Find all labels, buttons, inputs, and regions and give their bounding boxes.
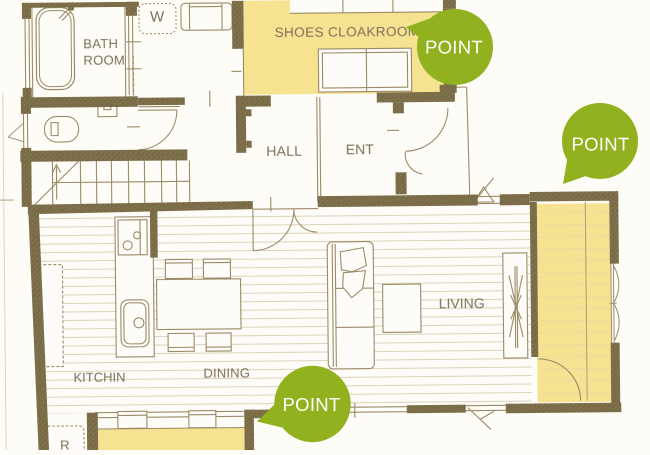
svg-text:POINT: POINT (571, 133, 629, 154)
svg-text:HALL: HALL (266, 143, 302, 159)
svg-text:POINT: POINT (425, 36, 483, 57)
svg-text:R: R (60, 437, 70, 450)
svg-text:LIVING: LIVING (439, 295, 485, 311)
svg-text:W: W (150, 9, 165, 26)
svg-text:ENT: ENT (346, 141, 375, 157)
svg-text:KITCHIN: KITCHIN (73, 370, 125, 385)
svg-text:BATH: BATH (83, 36, 118, 51)
svg-text:POINT: POINT (282, 394, 340, 415)
svg-text:ROOM: ROOM (83, 52, 125, 67)
svg-text:DINING: DINING (203, 365, 250, 380)
svg-text:SHOES CLOAKROOM: SHOES CLOAKROOM (275, 24, 420, 40)
